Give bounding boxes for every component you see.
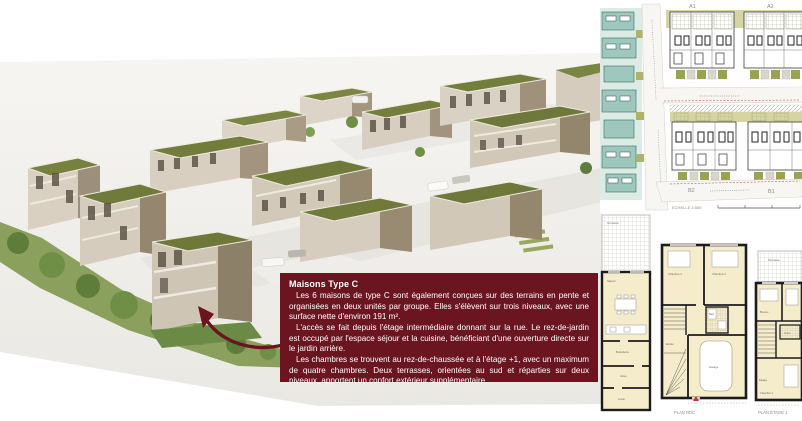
site-plan-label-a2: A2 (767, 4, 774, 10)
floor-plan-etage1: Terrasse Bureau S.d.b. (756, 251, 802, 415)
room-label-local: Local (618, 397, 625, 401)
room-label-terrasse-2: Terrasse (768, 258, 780, 262)
brochure-page: Maisons Type C Les 6 maisons de type C s… (0, 0, 802, 421)
infobox-paragraph-1: Les 6 maisons de type C sont également c… (289, 291, 589, 323)
site-plan-block-b (670, 112, 802, 180)
room-label-garage: Garage (709, 365, 719, 369)
floor-plan-rdc: Chambre 4 Chambre 3 Bain Garage Entrée (662, 245, 746, 415)
site-plan-teal-buildings (600, 8, 644, 200)
caption-plan-rdc: PLAN RDC (674, 410, 695, 415)
infobox-paragraph-3: Les chambres se trouvent au rez-de-chaus… (289, 355, 589, 387)
site-plan-street-horizontal (660, 87, 802, 103)
room-label-chambre4: Chambre 4 (668, 272, 682, 276)
site-plan-sidewalk-hatch (670, 105, 802, 112)
room-label-chambre3: Chambre 3 (712, 272, 726, 276)
room-label-cave: Cave (620, 374, 627, 378)
maisons-type-c-infobox: Maisons Type C Les 6 maisons de type C s… (280, 273, 598, 382)
caption-plan-etage1: PLAN ÉTAGE 1 (758, 410, 788, 415)
room-label-degagement: Dégag. (759, 378, 768, 382)
room-label-terrasse: Terrasse (607, 221, 619, 225)
room-label-sdb: S.d.b. (784, 331, 791, 335)
floor-plans: Terrasse Séjour (600, 213, 802, 421)
site-plan: A1 A2 (600, 0, 802, 213)
site-plan-label-b2: B2 (688, 188, 695, 194)
room-label-sejour: Séjour (607, 279, 616, 283)
site-plan-label-b1: B1 (768, 189, 775, 195)
room-label-bureau: Bureau (760, 310, 769, 314)
room-label-buanderie: Buanderie (616, 350, 629, 354)
scale-label: ECHELLE 1:500 (672, 205, 702, 210)
infobox-paragraph-2: L'accès se fait depuis l'étage intermédi… (289, 323, 589, 355)
site-plan-label-a1: A1 (689, 4, 696, 10)
floor-plan-jardin: Terrasse Séjour (602, 215, 650, 410)
room-label-bain: Bain (709, 312, 715, 316)
infobox-title: Maisons Type C (289, 279, 589, 289)
room-label-chambre1: Chambre 1 (760, 391, 773, 395)
room-label-entree: Entrée (666, 342, 674, 346)
